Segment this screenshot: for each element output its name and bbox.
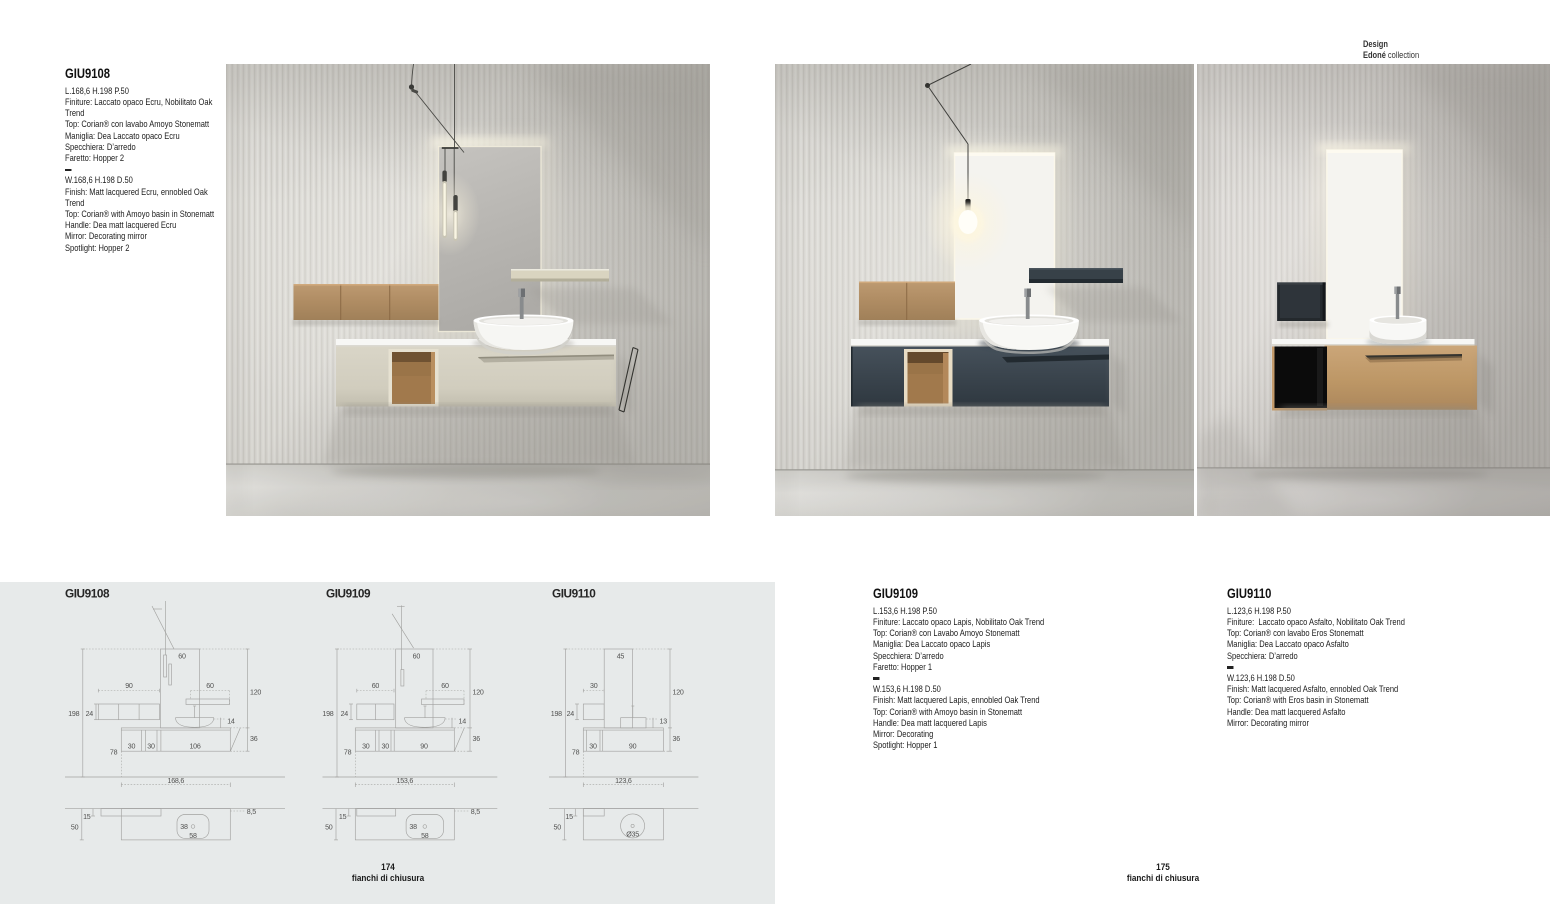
- svg-text:38: 38: [180, 823, 188, 831]
- svg-text:14: 14: [459, 718, 467, 726]
- svg-text:120: 120: [673, 689, 684, 697]
- svg-text:50: 50: [325, 824, 333, 832]
- svg-text:GIU9110: GIU9110: [552, 587, 596, 601]
- svg-text:GIU9109: GIU9109: [326, 587, 371, 601]
- svg-text:58: 58: [189, 832, 197, 840]
- svg-text:90: 90: [629, 743, 637, 751]
- svg-text:8,5: 8,5: [471, 808, 480, 816]
- svg-text:78: 78: [344, 749, 352, 757]
- svg-text:90: 90: [420, 743, 428, 751]
- svg-text:36: 36: [250, 735, 258, 743]
- svg-text:14: 14: [227, 718, 235, 726]
- svg-text:60: 60: [206, 682, 214, 690]
- svg-text:30: 30: [382, 743, 390, 751]
- svg-text:120: 120: [250, 689, 261, 697]
- svg-text:60: 60: [413, 653, 421, 661]
- svg-text:50: 50: [71, 824, 79, 832]
- svg-text:24: 24: [86, 710, 94, 718]
- svg-text:45: 45: [617, 653, 625, 661]
- svg-text:Ø35: Ø35: [626, 831, 639, 839]
- svg-text:GIU9108: GIU9108: [65, 587, 110, 601]
- svg-text:13: 13: [660, 718, 668, 726]
- svg-text:78: 78: [110, 749, 118, 757]
- svg-text:120: 120: [473, 689, 484, 697]
- svg-text:38: 38: [409, 823, 417, 831]
- svg-text:168,6: 168,6: [168, 777, 185, 785]
- svg-text:60: 60: [372, 682, 380, 690]
- svg-text:106: 106: [189, 743, 200, 751]
- svg-text:15: 15: [83, 813, 91, 821]
- svg-text:198: 198: [68, 710, 79, 718]
- svg-text:78: 78: [572, 749, 580, 757]
- svg-text:8,5: 8,5: [247, 808, 256, 816]
- svg-text:30: 30: [362, 743, 370, 751]
- svg-text:198: 198: [551, 710, 562, 718]
- svg-text:60: 60: [178, 653, 186, 661]
- svg-text:198: 198: [322, 710, 333, 718]
- svg-text:36: 36: [473, 735, 481, 743]
- svg-text:24: 24: [567, 710, 575, 718]
- svg-text:30: 30: [590, 682, 598, 690]
- svg-text:123,6: 123,6: [615, 777, 632, 785]
- svg-text:30: 30: [589, 743, 597, 751]
- svg-text:15: 15: [339, 813, 347, 821]
- svg-text:90: 90: [125, 682, 133, 690]
- svg-text:153,6: 153,6: [397, 777, 414, 785]
- svg-text:30: 30: [147, 743, 155, 751]
- svg-text:36: 36: [673, 735, 681, 743]
- svg-text:24: 24: [341, 710, 349, 718]
- svg-text:50: 50: [554, 824, 562, 832]
- svg-text:60: 60: [441, 682, 449, 690]
- svg-text:15: 15: [565, 813, 573, 821]
- svg-text:30: 30: [128, 743, 136, 751]
- svg-text:58: 58: [421, 832, 429, 840]
